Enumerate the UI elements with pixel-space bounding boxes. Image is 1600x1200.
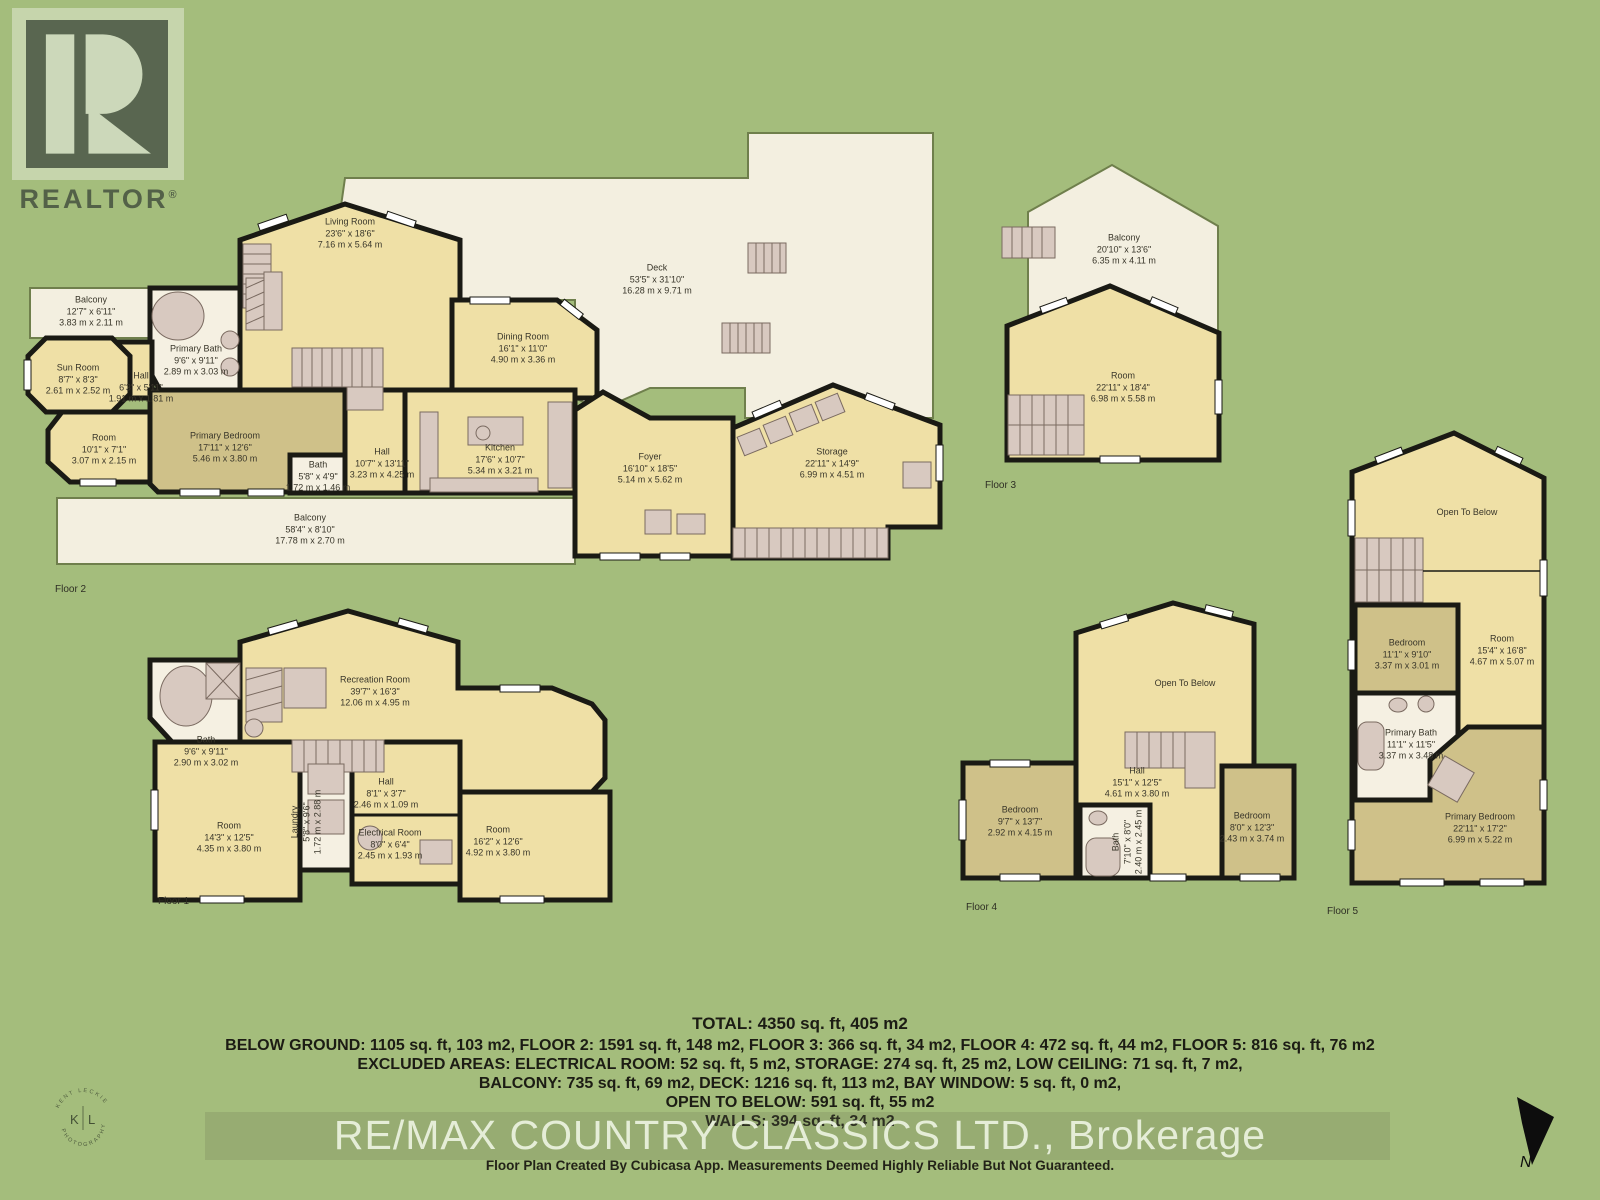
room-dims-metric: 2.40 m x 2.45 m: [1134, 810, 1146, 875]
room-dims-imperial: 16'1" x 11'0": [491, 343, 556, 355]
label-hall-f1: Hall 8'1" x 3'7" 2.46 m x 1.09 m: [354, 776, 419, 811]
room-name: Balcony: [59, 294, 123, 306]
room-dims-metric: 5.14 m x 5.62 m: [618, 475, 683, 487]
room-dims-metric: 6.35 m x 4.11 m: [1092, 256, 1156, 268]
room-dims-metric: 12.06 m x 4.95 m: [340, 698, 410, 710]
room-dims-metric: 3.07 m x 2.15 m: [72, 456, 137, 468]
room-dims-metric: 2.90 m x 3.02 m: [174, 758, 239, 770]
label-bedroom-f5: Bedroom 11'1" x 9'10" 3.37 m x 3.01 m: [1375, 637, 1440, 672]
room-name: Hall: [350, 446, 415, 458]
room-name: Living Room: [318, 216, 383, 228]
summary-open-to-below: OPEN TO BELOW: 591 sq. ft, 55 m2: [0, 1093, 1600, 1112]
label-balcony-top: Balcony 12'7" x 6'11" 3.83 m x 2.11 m: [59, 294, 123, 329]
summary-excluded2: BALCONY: 735 sq. ft, 69 m2, DECK: 1216 s…: [0, 1074, 1600, 1093]
label-deck: Deck 53'5" x 31'10" 16.28 m x 9.71 m: [622, 262, 692, 297]
room-dims-imperial: 9'6" x 9'11": [174, 746, 239, 758]
room-dims-metric: 2.46 m x 1.09 m: [354, 800, 419, 812]
room-dims-metric: 4.90 m x 3.36 m: [491, 355, 556, 367]
summary-excluded: EXCLUDED AREAS: ELECTRICAL ROOM: 52 sq. …: [0, 1055, 1600, 1074]
room-dims-imperial: 16'10" x 18'5": [618, 463, 683, 475]
floor1-tag: Floor 1: [158, 896, 189, 907]
room-name: Bath: [174, 734, 239, 746]
label-room-f3: Room 22'11" x 18'4" 6.98 m x 5.58 m: [1091, 370, 1156, 405]
room-dims-metric: 2.43 m x 3.74 m: [1220, 834, 1285, 846]
room-dims-imperial: 15'4" x 16'8": [1470, 645, 1535, 657]
realtor-logo-inner: [26, 20, 168, 168]
room-dims-imperial: 12'7" x 6'11": [59, 306, 123, 318]
room-dims-imperial: 9'7" x 13'7": [988, 816, 1053, 828]
room-name: Primary Bath: [164, 343, 229, 355]
room-dims-imperial: 11'1" x 9'10": [1375, 649, 1440, 661]
label-laundry: Laundry 5'8" x 9'6" 1.72 m x 2.88 m: [289, 790, 324, 855]
label-balcony-f3: Balcony 20'10" x 13'6" 6.35 m x 4.11 m: [1092, 232, 1156, 267]
room-dims-metric: 16.28 m x 9.71 m: [622, 286, 692, 298]
label-balcony-bottom: Balcony 58'4" x 8'10" 17.78 m x 2.70 m: [275, 512, 345, 547]
summary-areas: BELOW GROUND: 1105 sq. ft, 103 m2, FLOOR…: [0, 1036, 1600, 1055]
room-name: Primary Bedroom: [190, 430, 260, 442]
room-dims-imperial: 17'11" x 12'6": [190, 442, 260, 454]
room-dims-metric: 6.99 m x 5.22 m: [1445, 835, 1515, 847]
room-name: Bedroom: [988, 804, 1053, 816]
room-dims-imperial: 5'8" x 9'6": [301, 790, 313, 855]
room-dims-imperial: 10'1" x 7'1": [72, 444, 137, 456]
room-dims-imperial: 15'1" x 12'5": [1105, 777, 1170, 789]
label-primary-bedroom-f5: Primary Bedroom 22'11" x 17'2" 6.99 m x …: [1445, 811, 1515, 846]
room-dims-imperial: 11'1" x 11'5": [1379, 739, 1444, 751]
label-bath-f2: Bath 5'8" x 4'9" 1.72 m x 1.46 m: [286, 459, 351, 494]
room-name: Room: [197, 820, 262, 832]
room-dims-metric: 1.72 m x 1.46 m: [286, 483, 351, 495]
floor3-tag: Floor 3: [985, 480, 1016, 491]
room-dims-imperial: 10'7" x 13'11": [350, 458, 415, 470]
room-dims-metric: 6.98 m x 5.58 m: [1091, 394, 1156, 406]
room-name: Recreation Room: [340, 674, 410, 686]
label-recreation-room: Recreation Room 39'7" x 16'3" 12.06 m x …: [340, 674, 410, 709]
room-name: Hall: [1105, 765, 1170, 777]
registered-mark: ®: [168, 189, 176, 201]
room-name: Bedroom: [1375, 637, 1440, 649]
room-dims-metric: 4.61 m x 3.80 m: [1105, 789, 1170, 801]
label-bath-f4: Bath 7'10" x 8'0" 2.40 m x 2.45 m: [1110, 810, 1145, 875]
label-electrical-room: Electrical Room 8'0" x 6'4" 2.45 m x 1.9…: [358, 827, 423, 862]
room-name: Sun Room: [46, 362, 111, 374]
room-name: Room: [466, 824, 531, 836]
label-kitchen: Kitchen 17'6" x 10'7" 5.34 m x 3.21 m: [468, 442, 533, 477]
label-room-f5: Room 15'4" x 16'8" 4.67 m x 5.07 m: [1470, 633, 1535, 668]
room-name: Open To Below: [1155, 678, 1216, 690]
realtor-r-icon: [26, 20, 168, 168]
label-room-left-f1: Room 14'3" x 12'5" 4.35 m x 3.80 m: [197, 820, 262, 855]
label-sun-room: Sun Room 8'7" x 8'3" 2.61 m x 2.52 m: [46, 362, 111, 397]
room-name: Open To Below: [1437, 507, 1498, 519]
label-foyer: Foyer 16'10" x 18'5" 5.14 m x 5.62 m: [618, 451, 683, 486]
floor-plan-page: { "colors":{ "background":"#a4bd7c","dec…: [0, 0, 1600, 1200]
floor2-tag: Floor 2: [55, 584, 86, 595]
room-dims-imperial: 16'2" x 12'6": [466, 836, 531, 848]
label-bath-f1: Bath 9'6" x 9'11" 2.90 m x 3.02 m: [174, 734, 239, 769]
label-room-left-f2: Room 10'1" x 7'1" 3.07 m x 2.15 m: [72, 432, 137, 467]
room-dims-imperial: 22'11" x 17'2": [1445, 823, 1515, 835]
summary-total: TOTAL: 4350 sq. ft, 405 m2: [0, 1014, 1600, 1033]
room-dims-imperial: 20'10" x 13'6": [1092, 244, 1156, 256]
room-dims-metric: 2.61 m x 2.52 m: [46, 386, 111, 398]
label-open-to-below-f4: Open To Below: [1155, 678, 1216, 690]
label-primary-bath-f5: Primary Bath 11'1" x 11'5" 3.37 m x 3.48…: [1379, 727, 1444, 762]
room-dims-metric: 2.92 m x 4.15 m: [988, 828, 1053, 840]
label-open-to-below-f5: Open To Below: [1437, 507, 1498, 519]
room-dims-imperial: 58'4" x 8'10": [275, 524, 345, 536]
room-dims-metric: 4.67 m x 5.07 m: [1470, 657, 1535, 669]
room-dims-metric: 2.45 m x 1.93 m: [358, 851, 423, 863]
realtor-logo-text: REALTOR®: [12, 184, 184, 215]
room-name: Bath: [1110, 810, 1122, 875]
room-name: Room: [72, 432, 137, 444]
room-dims-imperial: 7'10" x 8'0": [1122, 810, 1134, 875]
room-dims-metric: 3.83 m x 2.11 m: [59, 318, 123, 330]
room-dims-imperial: 6'3" x 5'11": [109, 382, 174, 394]
room-dims-imperial: 8'7" x 8'3": [46, 374, 111, 386]
room-dims-metric: 6.99 m x 4.51 m: [800, 470, 865, 482]
label-primary-bath-f2: Primary Bath 9'6" x 9'11" 2.89 m x 3.03 …: [164, 343, 229, 378]
room-name: Primary Bath: [1379, 727, 1444, 739]
room-dims-metric: 5.46 m x 3.80 m: [190, 454, 260, 466]
room-name: Balcony: [1092, 232, 1156, 244]
room-dims-imperial: 39'7" x 16'3": [340, 686, 410, 698]
room-name: Storage: [800, 446, 865, 458]
room-dims-imperial: 9'6" x 9'11": [164, 355, 229, 367]
room-name: Primary Bedroom: [1445, 811, 1515, 823]
room-name: Dining Room: [491, 331, 556, 343]
room-dims-metric: 5.34 m x 3.21 m: [468, 466, 533, 478]
room-name: Balcony: [275, 512, 345, 524]
disclaimer-text: Floor Plan Created By Cubicasa App. Meas…: [0, 1158, 1600, 1173]
floor4-tag: Floor 4: [966, 902, 997, 913]
room-dims-imperial: 17'6" x 10'7": [468, 454, 533, 466]
room-dims-metric: 3.37 m x 3.01 m: [1375, 661, 1440, 673]
label-hall-f4: Hall 15'1" x 12'5" 4.61 m x 3.80 m: [1105, 765, 1170, 800]
room-name: Electrical Room: [358, 827, 423, 839]
realtor-word: REALTOR: [19, 184, 168, 214]
room-dims-metric: 3.37 m x 3.48 m: [1379, 751, 1444, 763]
label-dining-room: Dining Room 16'1" x 11'0" 4.90 m x 3.36 …: [491, 331, 556, 366]
room-dims-imperial: 8'0" x 6'4": [358, 839, 423, 851]
room-name: Foyer: [618, 451, 683, 463]
label-primary-bedroom-f2: Primary Bedroom 17'11" x 12'6" 5.46 m x …: [190, 430, 260, 465]
room-dims-imperial: 22'11" x 14'9": [800, 458, 865, 470]
room-dims-metric: 1.72 m x 2.88 m: [313, 790, 325, 855]
room-name: Room: [1470, 633, 1535, 645]
floor5-tag: Floor 5: [1327, 906, 1358, 917]
room-dims-metric: 4.92 m x 3.80 m: [466, 848, 531, 860]
room-dims-imperial: 8'0" x 12'3": [1220, 822, 1285, 834]
room-name: Bedroom: [1220, 810, 1285, 822]
room-name: Deck: [622, 262, 692, 274]
room-dims-metric: 3.23 m x 4.25 m: [350, 470, 415, 482]
realtor-logo: REALTOR®: [12, 8, 184, 216]
room-dims-imperial: 14'3" x 12'5": [197, 832, 262, 844]
room-name: Hall: [354, 776, 419, 788]
label-hall-f2: Hall 10'7" x 13'11" 3.23 m x 4.25 m: [350, 446, 415, 481]
floor3-plan: [1002, 165, 1222, 463]
room-dims-imperial: 22'11" x 18'4": [1091, 382, 1156, 394]
room-dims-imperial: 8'1" x 3'7": [354, 788, 419, 800]
room-dims-imperial: 53'5" x 31'10": [622, 274, 692, 286]
label-bedroom-right-f4: Bedroom 8'0" x 12'3" 2.43 m x 3.74 m: [1220, 810, 1285, 845]
room-name: Bath: [286, 459, 351, 471]
room-dims-metric: 1.91 m x 1.81 m: [109, 394, 174, 406]
room-dims-imperial: 5'8" x 4'9": [286, 471, 351, 483]
room-dims-metric: 17.78 m x 2.70 m: [275, 536, 345, 548]
label-bedroom-left-f4: Bedroom 9'7" x 13'7" 2.92 m x 4.15 m: [988, 804, 1053, 839]
brokerage-watermark: RE/MAX COUNTRY CLASSICS LTD., Brokerage: [0, 1112, 1600, 1159]
room-name: Room: [1091, 370, 1156, 382]
room-name: Kitchen: [468, 442, 533, 454]
room-name: Laundry: [289, 790, 301, 855]
room-dims-imperial: 23'6" x 18'6": [318, 228, 383, 240]
label-room-right-f1: Room 16'2" x 12'6" 4.92 m x 3.80 m: [466, 824, 531, 859]
room-dims-metric: 7.16 m x 5.64 m: [318, 240, 383, 252]
label-living-room: Living Room 23'6" x 18'6" 7.16 m x 5.64 …: [318, 216, 383, 251]
label-storage: Storage 22'11" x 14'9" 6.99 m x 4.51 m: [800, 446, 865, 481]
room-dims-metric: 2.89 m x 3.03 m: [164, 367, 229, 379]
room-dims-metric: 4.35 m x 3.80 m: [197, 844, 262, 856]
